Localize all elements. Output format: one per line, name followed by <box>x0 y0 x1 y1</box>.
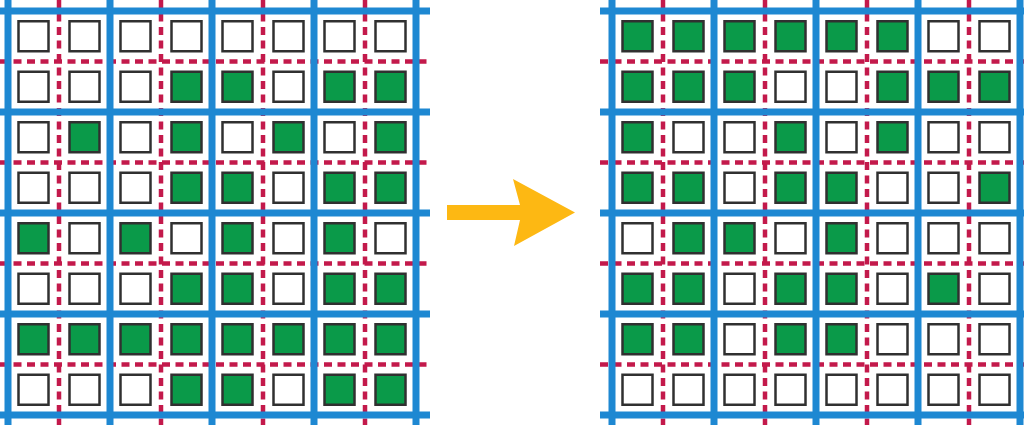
grid-cell-empty <box>274 72 304 102</box>
grid-cell-filled <box>878 122 908 152</box>
grid-cell-filled <box>827 21 857 51</box>
grid-cell-filled <box>223 375 253 405</box>
grid-cell-empty <box>980 122 1010 152</box>
grid-cell-empty <box>929 324 959 354</box>
grid-cell-empty <box>376 21 406 51</box>
grid-cell-empty <box>70 173 100 203</box>
grid-cell-empty <box>70 223 100 253</box>
grid-cell-filled <box>827 173 857 203</box>
grid-cell-filled <box>776 122 806 152</box>
grid-cell-empty <box>121 122 151 152</box>
grid-cell-filled <box>776 274 806 304</box>
grid-cell-empty <box>274 274 304 304</box>
grid-cell-filled <box>878 72 908 102</box>
grid-cell-empty <box>274 375 304 405</box>
grid-cell-filled <box>325 72 355 102</box>
grid-cell-filled <box>376 324 406 354</box>
grid-cell-filled <box>121 324 151 354</box>
grid-cell-filled <box>376 72 406 102</box>
grid-cell-filled <box>172 375 202 405</box>
grid-cell-filled <box>674 173 704 203</box>
figure-canvas <box>0 0 1024 425</box>
grid-cell-filled <box>623 122 653 152</box>
grid-cell-filled <box>674 324 704 354</box>
grid-cell-filled <box>376 274 406 304</box>
grid-cell-filled <box>827 324 857 354</box>
grid-cell-empty <box>878 375 908 405</box>
after-grid <box>600 0 1024 425</box>
grid-cell-empty <box>70 375 100 405</box>
grid-cell-empty <box>121 375 151 405</box>
grid-cell-empty <box>274 173 304 203</box>
grid-cell-empty <box>19 72 49 102</box>
grid-cell-filled <box>223 274 253 304</box>
grid-cell-empty <box>172 223 202 253</box>
grid-cell-filled <box>623 173 653 203</box>
grid-cell-filled <box>223 223 253 253</box>
grid-cell-empty <box>70 274 100 304</box>
grid-cell-empty <box>827 375 857 405</box>
grid-cell-filled <box>325 173 355 203</box>
grid-cell-filled <box>827 274 857 304</box>
grid-cell-filled <box>623 324 653 354</box>
grid-cell-filled <box>980 72 1010 102</box>
grid-cell-filled <box>776 173 806 203</box>
grid-cell-empty <box>70 72 100 102</box>
grid-cell-empty <box>725 122 755 152</box>
grid-cell-filled <box>878 21 908 51</box>
grid-cell-empty <box>929 21 959 51</box>
grid-cell-empty <box>827 122 857 152</box>
grid-cell-filled <box>325 375 355 405</box>
grid-cell-empty <box>376 223 406 253</box>
grid-cell-empty <box>325 21 355 51</box>
grid-cell-empty <box>223 21 253 51</box>
grid-cell-empty <box>776 72 806 102</box>
grid-cell-empty <box>223 122 253 152</box>
grid-cell-filled <box>674 72 704 102</box>
grid-cell-empty <box>121 72 151 102</box>
grid-cell-empty <box>980 21 1010 51</box>
grid-cell-empty <box>725 324 755 354</box>
grid-cell-filled <box>274 324 304 354</box>
grid-cell-empty <box>980 274 1010 304</box>
grid-cell-empty <box>878 274 908 304</box>
grid-cell-empty <box>980 324 1010 354</box>
grid-cell-filled <box>70 324 100 354</box>
grid-cell-empty <box>623 223 653 253</box>
grid-cell-empty <box>929 375 959 405</box>
grid-cell-empty <box>121 274 151 304</box>
grid-cell-filled <box>623 21 653 51</box>
grid-cell-filled <box>776 21 806 51</box>
grid-cell-filled <box>172 122 202 152</box>
grid-cell-empty <box>623 375 653 405</box>
grid-cell-filled <box>121 223 151 253</box>
grid-cell-filled <box>725 21 755 51</box>
grid-cell-filled <box>19 223 49 253</box>
grid-cell-empty <box>121 173 151 203</box>
grid-cell-filled <box>623 274 653 304</box>
grid-cell-empty <box>19 173 49 203</box>
grid-cell-empty <box>274 21 304 51</box>
grid-cell-filled <box>674 274 704 304</box>
grid-cell-empty <box>325 122 355 152</box>
grid-cell-empty <box>674 375 704 405</box>
grid-cell-filled <box>827 223 857 253</box>
grid-cell-empty <box>878 223 908 253</box>
grid-cell-filled <box>325 274 355 304</box>
grid-cell-empty <box>19 122 49 152</box>
grid-cell-empty <box>929 223 959 253</box>
grid-cell-empty <box>725 274 755 304</box>
grid-cell-empty <box>725 375 755 405</box>
grid-cell-filled <box>223 324 253 354</box>
grid-cell-filled <box>274 122 304 152</box>
grid-cell-empty <box>19 375 49 405</box>
grid-cell-filled <box>223 173 253 203</box>
grid-cell-filled <box>376 375 406 405</box>
grid-cell-empty <box>980 375 1010 405</box>
grid-cell-empty <box>827 72 857 102</box>
grid-cell-filled <box>172 72 202 102</box>
grid-cell-empty <box>878 173 908 203</box>
grid-cell-filled <box>929 72 959 102</box>
grid-cell-empty <box>172 21 202 51</box>
grid-cell-filled <box>776 324 806 354</box>
grid-cell-empty <box>929 173 959 203</box>
grid-cell-filled <box>623 72 653 102</box>
grid-cell-filled <box>172 274 202 304</box>
grid-cell-filled <box>725 72 755 102</box>
grid-cell-filled <box>325 324 355 354</box>
right-arrow-icon <box>447 179 575 246</box>
grid-cell-empty <box>19 274 49 304</box>
grid-cell-empty <box>776 375 806 405</box>
grid-cell-filled <box>929 274 959 304</box>
grid-cell-filled <box>980 173 1010 203</box>
grid-cell-filled <box>223 72 253 102</box>
grid-cell-empty <box>121 21 151 51</box>
grid-cell-filled <box>376 122 406 152</box>
grid-cell-empty <box>674 122 704 152</box>
grid-cell-filled <box>674 21 704 51</box>
grid-cell-filled <box>172 324 202 354</box>
grid-cell-empty <box>776 223 806 253</box>
grid-cell-empty <box>725 173 755 203</box>
before-grid <box>0 0 430 425</box>
grid-cell-filled <box>325 223 355 253</box>
grid-cell-filled <box>376 173 406 203</box>
grid-cell-filled <box>172 173 202 203</box>
grid-cell-empty <box>929 122 959 152</box>
grid-cell-empty <box>274 223 304 253</box>
grid-cell-filled <box>674 223 704 253</box>
grid-cell-empty <box>19 21 49 51</box>
grid-cell-empty <box>980 223 1010 253</box>
grid-cell-filled <box>725 223 755 253</box>
grid-cell-empty <box>70 21 100 51</box>
grid-cell-filled <box>19 324 49 354</box>
transform-arrow <box>440 170 585 260</box>
grid-cell-filled <box>70 122 100 152</box>
grid-cell-empty <box>878 324 908 354</box>
